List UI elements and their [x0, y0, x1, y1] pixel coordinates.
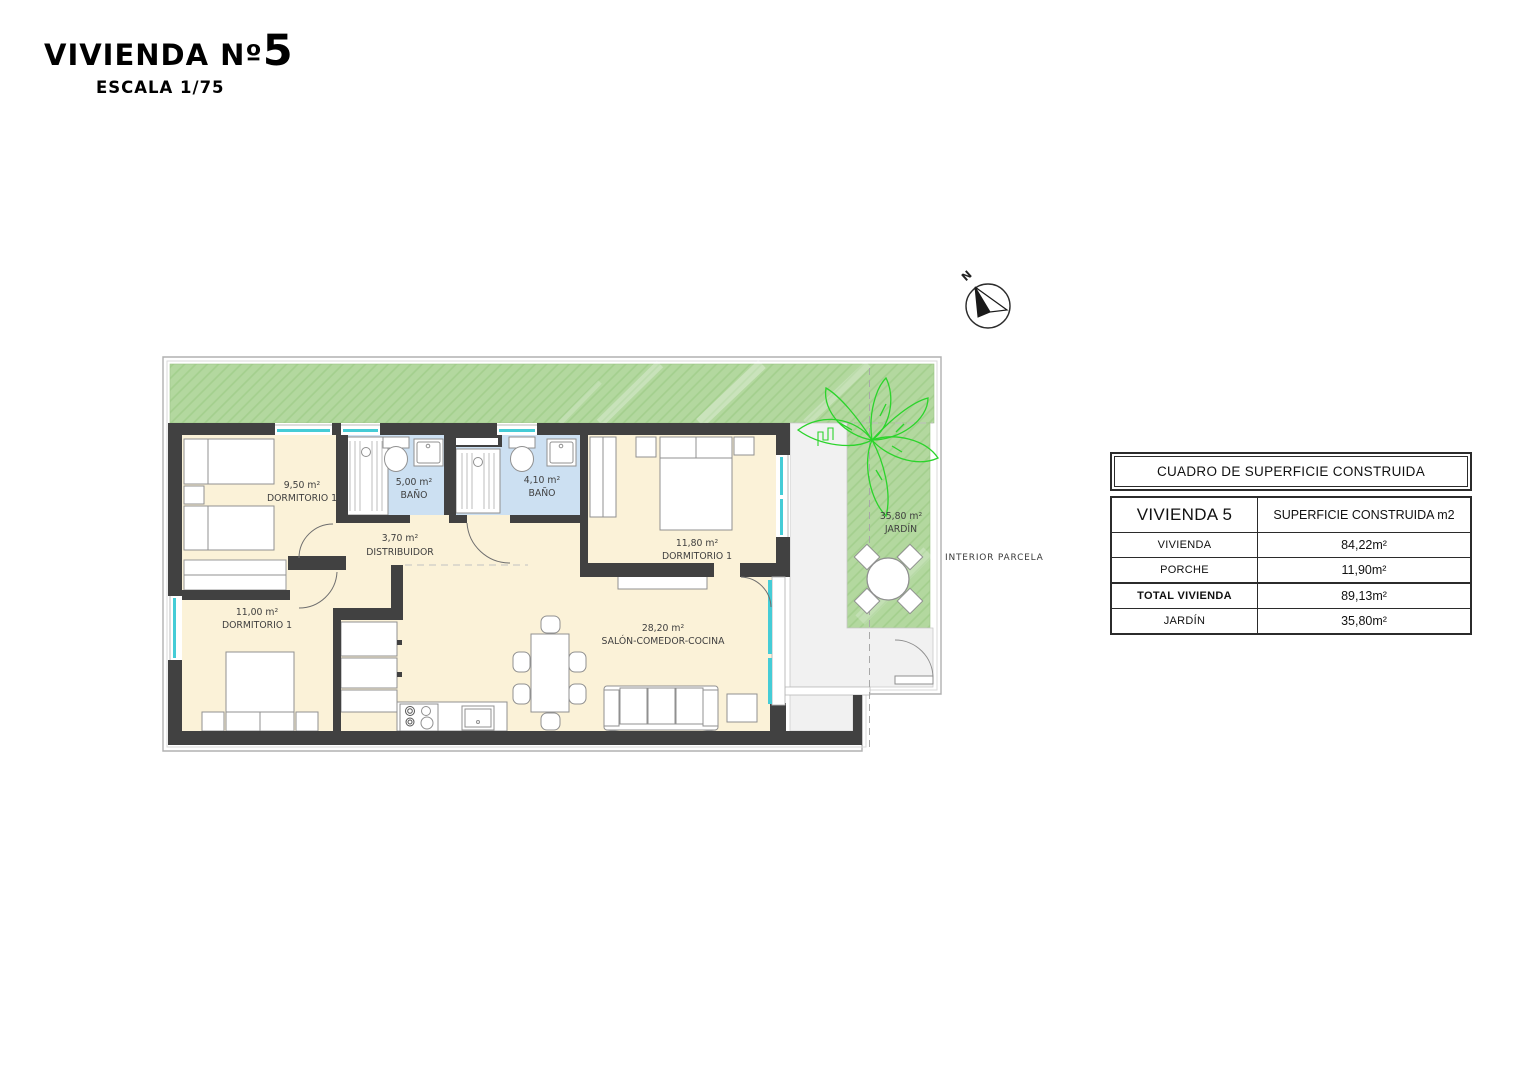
- double-bed-right: [590, 437, 754, 530]
- table-row: VIVIENDA 84,22m²: [1112, 532, 1470, 557]
- shower-1: [344, 437, 388, 515]
- row-value: 84,22m²: [1258, 533, 1470, 557]
- window-top-3: [497, 423, 537, 435]
- window-top-1: [275, 423, 332, 435]
- table-row: PORCHE 11,90m²: [1112, 557, 1470, 582]
- row-label: PORCHE: [1112, 558, 1258, 582]
- room-label-bath1-area: 5,00 m²: [396, 477, 433, 488]
- page: VIVIENDA Nº5 ESCALA 1/75: [0, 0, 1527, 1080]
- room-label-living-name: SALÓN-COMEDOR-COCINA: [602, 635, 726, 647]
- table-row: VIVIENDA 5 SUPERFICIE CONSTRUIDA m2: [1112, 498, 1470, 532]
- row-value: 35,80m²: [1258, 609, 1470, 633]
- north-arrow-icon: N: [959, 268, 1010, 328]
- room-label-dorm-bottom-left-area: 11,00 m²: [236, 607, 279, 618]
- row-value: 89,13m²: [1258, 584, 1470, 608]
- sink-1: [414, 439, 443, 466]
- interior-parcela-label: INTERIOR PARCELA: [945, 553, 1044, 563]
- toilet-1: [383, 437, 409, 472]
- toilet-2: [509, 437, 535, 472]
- room-label-living-area: 28,20 m²: [642, 623, 685, 634]
- room-label-bath2-area: 4,10 m²: [524, 475, 561, 486]
- shower-2: [456, 449, 500, 513]
- room-label-dorm-top-left-name: DORMITORIO 1: [267, 493, 337, 504]
- garden-band: [170, 364, 934, 423]
- room-label-bath1-name: BAÑO: [400, 490, 427, 501]
- sofa: [604, 686, 718, 734]
- bath-niche: [456, 438, 498, 445]
- stove-icon: [400, 704, 438, 731]
- window-right-bedroom: [776, 455, 790, 537]
- col1-header: VIVIENDA 5: [1112, 498, 1258, 532]
- surface-table-header: CUADRO DE SUPERFICIE CONSTRUIDA: [1110, 452, 1472, 491]
- sink-2: [547, 439, 576, 466]
- window-living-glazing: [768, 577, 785, 705]
- col2-header: SUPERFICIE CONSTRUIDA m2: [1258, 498, 1470, 532]
- window-top-2: [341, 423, 380, 435]
- room-label-dorm-right-name: DORMITORIO 1: [662, 551, 732, 562]
- wardrobe: [184, 560, 286, 590]
- side-table: [727, 694, 757, 722]
- room-label-hall-area: 3,70 m²: [382, 533, 419, 544]
- row-label: TOTAL VIVIENDA: [1112, 584, 1258, 608]
- table-row-total: TOTAL VIVIENDA 89,13m²: [1112, 582, 1470, 608]
- kitchen-cabinets: [341, 622, 402, 712]
- room-label-dorm-top-left-area: 9,50 m²: [284, 480, 321, 491]
- row-label: VIVIENDA: [1112, 533, 1258, 557]
- room-label-garden-area: 35,80 m²: [880, 511, 923, 522]
- kitchen-sink-icon: [462, 706, 494, 730]
- north-label: N: [959, 268, 975, 284]
- row-value: 11,90m²: [1258, 558, 1470, 582]
- room-label-dorm-right-area: 11,80 m²: [676, 538, 719, 549]
- room-label-garden-name: JARDÍN: [884, 523, 917, 535]
- surface-table-body: VIVIENDA 5 SUPERFICIE CONSTRUIDA m2 VIVI…: [1110, 496, 1472, 635]
- table-row: JARDÍN 35,80m²: [1112, 608, 1470, 633]
- surface-table: CUADRO DE SUPERFICIE CONSTRUIDA VIVIENDA…: [1110, 452, 1472, 635]
- room-label-bath2-name: BAÑO: [528, 488, 555, 499]
- room-label-dorm-bottom-left-name: DORMITORIO 1: [222, 620, 292, 631]
- room-label-hall-name: DISTRIBUIDOR: [366, 547, 434, 558]
- surface-table-title: CUADRO DE SUPERFICIE CONSTRUIDA: [1114, 456, 1468, 487]
- window-left: [168, 596, 182, 660]
- row-label: JARDÍN: [1112, 609, 1258, 633]
